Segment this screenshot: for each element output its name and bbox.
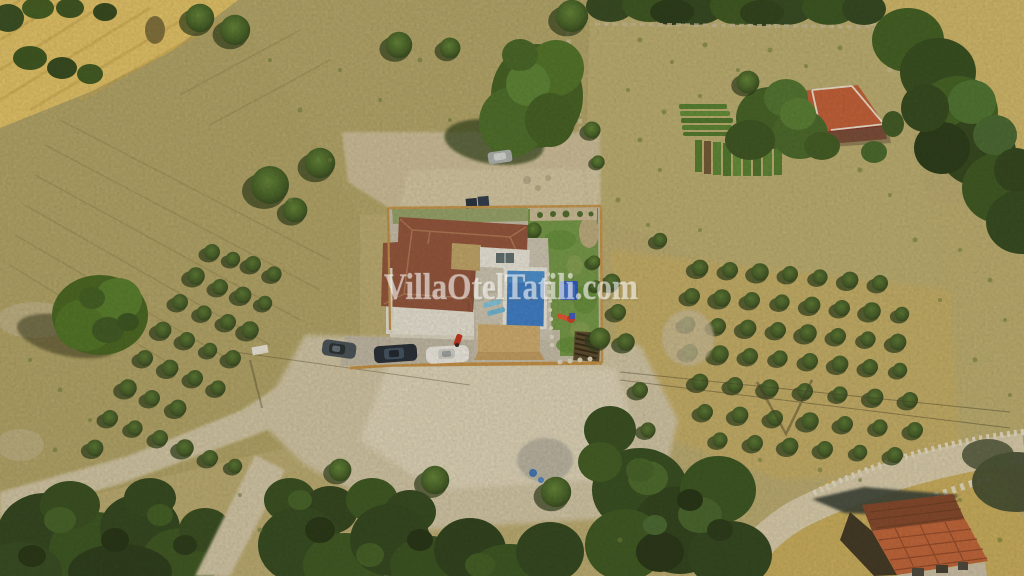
svg-text:VillaOtelTatili.com: VillaOtelTatili.com (384, 267, 638, 308)
